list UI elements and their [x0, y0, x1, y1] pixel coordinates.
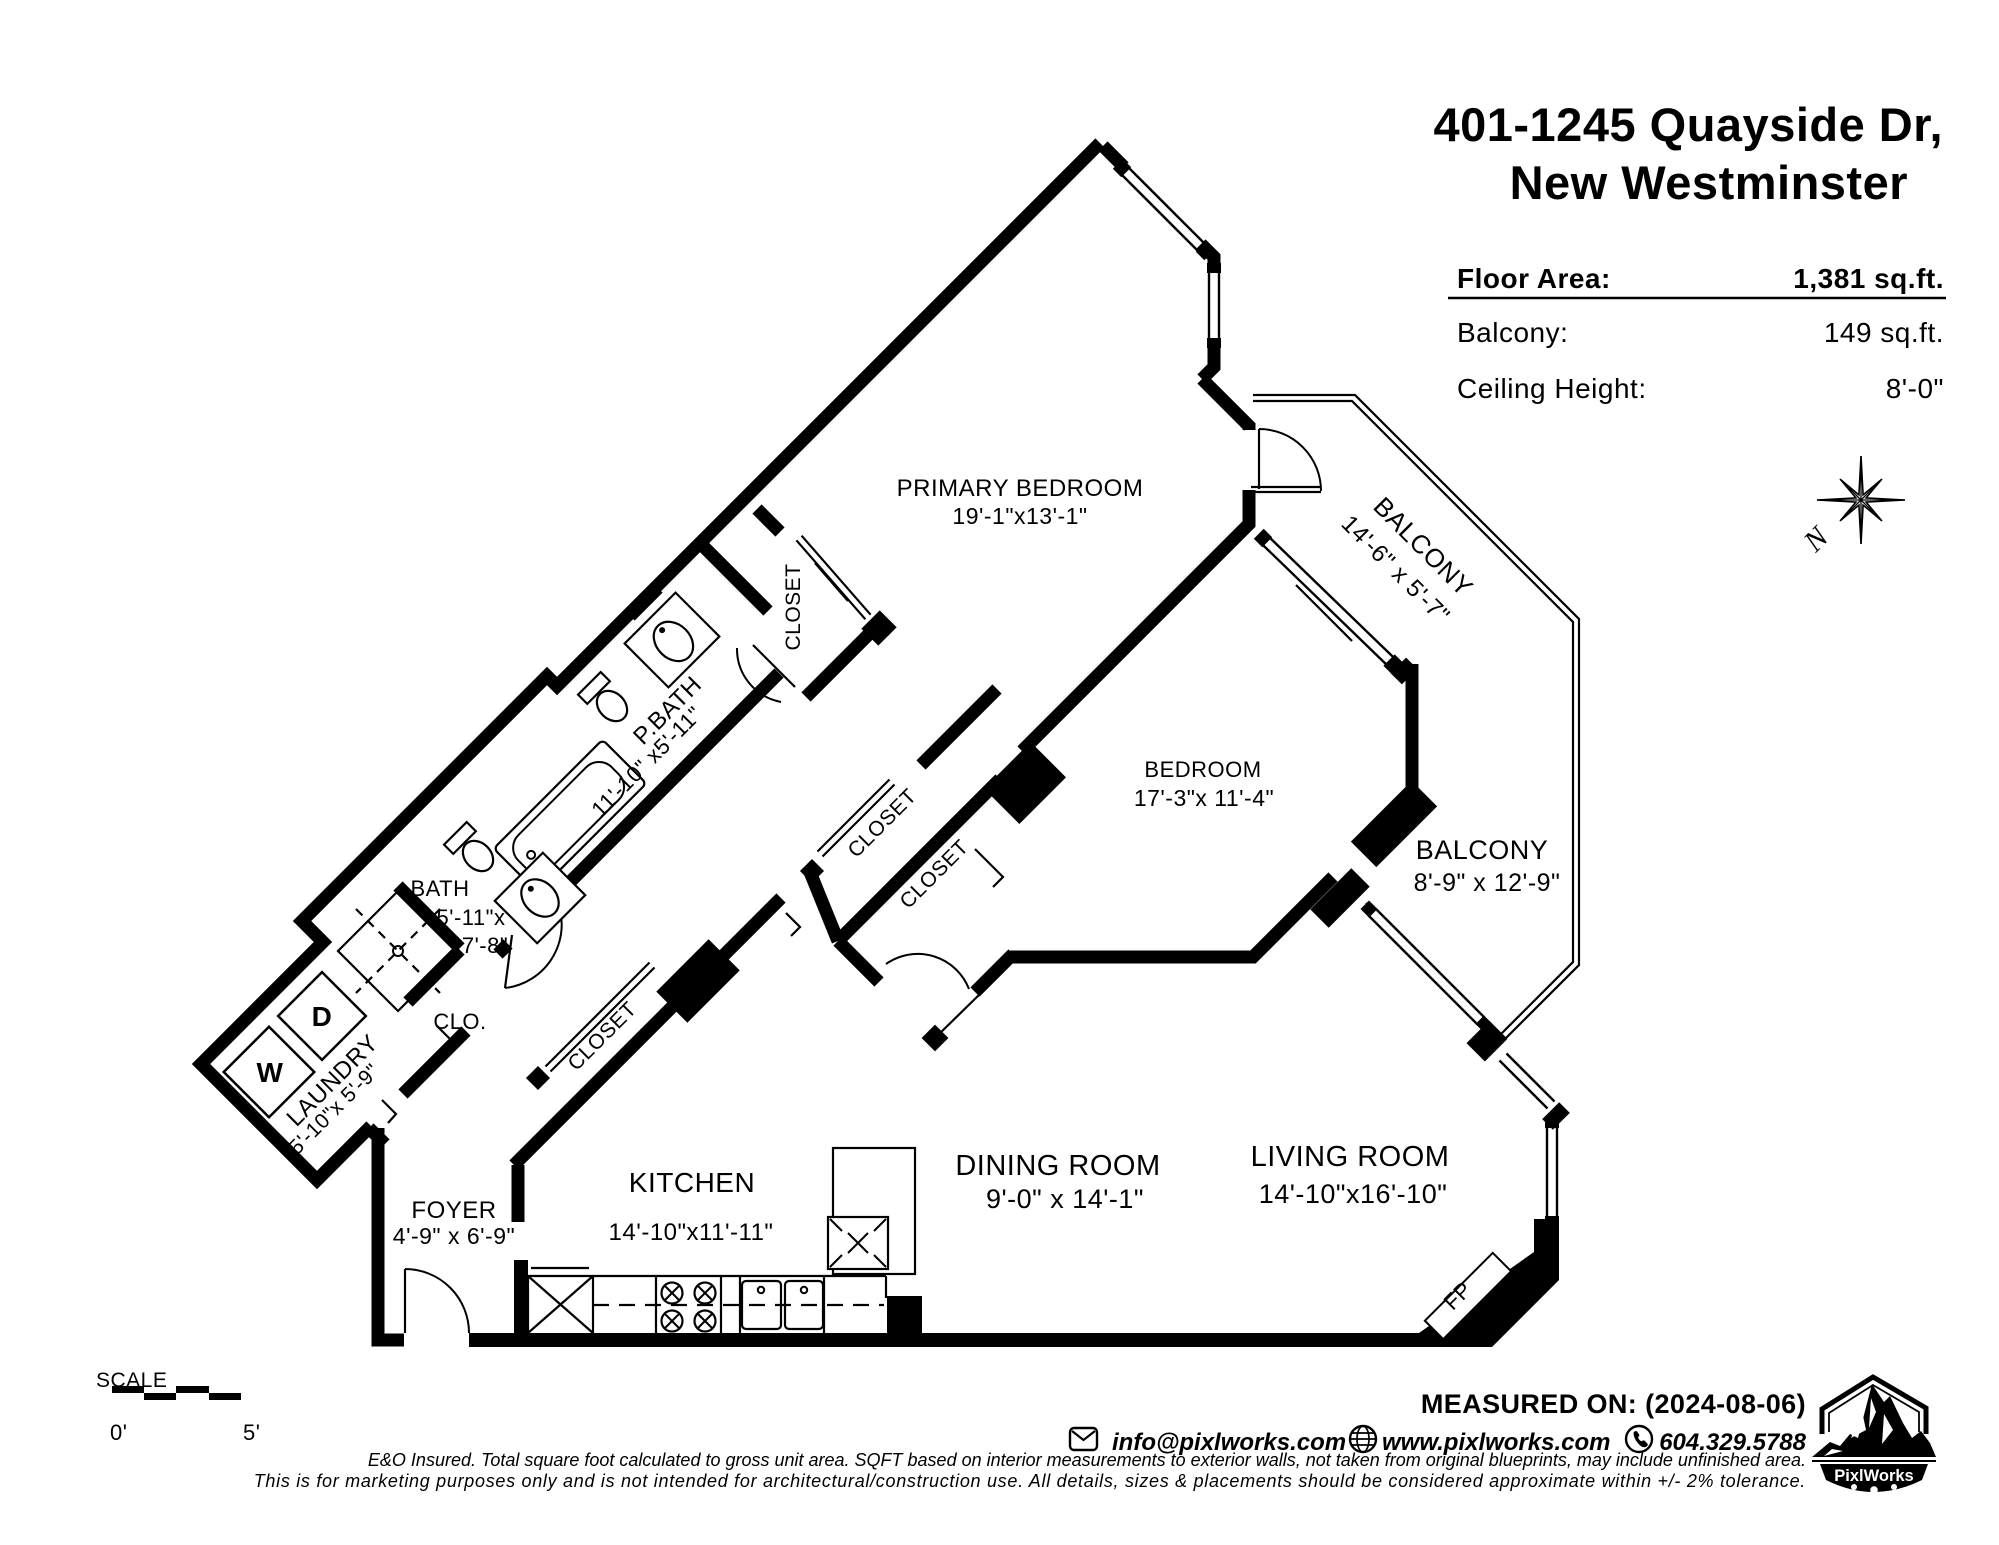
svg-text:5'-11"x: 5'-11"x	[437, 905, 506, 930]
svg-text:Balcony:: Balcony:	[1457, 317, 1568, 348]
svg-text:14'-10"x16'-10": 14'-10"x16'-10"	[1259, 1179, 1448, 1209]
svg-text:BATH: BATH	[410, 876, 469, 901]
svg-text:MEASURED ON: (2024-08-06): MEASURED ON: (2024-08-06)	[1421, 1389, 1806, 1419]
svg-text:KITCHEN: KITCHEN	[629, 1167, 755, 1198]
svg-text:9'-0" x 14'-1": 9'-0" x 14'-1"	[986, 1184, 1144, 1214]
svg-text:N: N	[1797, 519, 1837, 559]
svg-text:19'-1"x13'-1": 19'-1"x13'-1"	[952, 503, 1087, 529]
svg-text:1,381 sq.ft.: 1,381 sq.ft.	[1793, 263, 1944, 294]
svg-text:This is for marketing purposes: This is for marketing purposes only and …	[254, 1471, 1806, 1491]
svg-text:401-1245 Quayside Dr,: 401-1245 Quayside Dr,	[1433, 98, 1943, 151]
svg-text:CLOSET: CLOSET	[782, 563, 805, 650]
svg-text:Ceiling Height:: Ceiling Height:	[1457, 373, 1647, 404]
svg-text:17'-3"x 11'-4": 17'-3"x 11'-4"	[1134, 785, 1274, 811]
svg-text:BEDROOM: BEDROOM	[1144, 757, 1261, 782]
svg-text:D: D	[312, 1001, 333, 1032]
svg-text:E&O Insured. Total square foo: E&O Insured. Total square foot calculate…	[368, 1450, 1806, 1470]
svg-text:0': 0'	[110, 1420, 127, 1445]
svg-text:LIVING ROOM: LIVING ROOM	[1251, 1141, 1450, 1173]
svg-text:W: W	[257, 1057, 284, 1088]
svg-text:14'-10"x11'-11": 14'-10"x11'-11"	[609, 1219, 774, 1246]
svg-text:5': 5'	[243, 1420, 260, 1445]
svg-text:PixlWorks: PixlWorks	[1834, 1467, 1913, 1485]
svg-text:CLO.: CLO.	[433, 1009, 486, 1034]
svg-text:7'-8": 7'-8"	[462, 933, 508, 958]
svg-text:149 sq.ft.: 149 sq.ft.	[1824, 317, 1944, 348]
svg-text:FOYER: FOYER	[411, 1197, 496, 1224]
svg-text:Floor Area:: Floor Area:	[1457, 263, 1611, 294]
svg-text:New Westminster: New Westminster	[1510, 156, 1908, 209]
svg-text:DINING ROOM: DINING ROOM	[955, 1150, 1160, 1182]
svg-text:8'-9" x 12'-9": 8'-9" x 12'-9"	[1414, 869, 1561, 897]
svg-text:4'-9" x 6'-9": 4'-9" x 6'-9"	[393, 1223, 515, 1249]
svg-text:PRIMARY BEDROOM: PRIMARY BEDROOM	[897, 475, 1144, 502]
svg-text:8'-0": 8'-0"	[1886, 373, 1944, 404]
svg-text:BALCONY: BALCONY	[1416, 835, 1549, 865]
